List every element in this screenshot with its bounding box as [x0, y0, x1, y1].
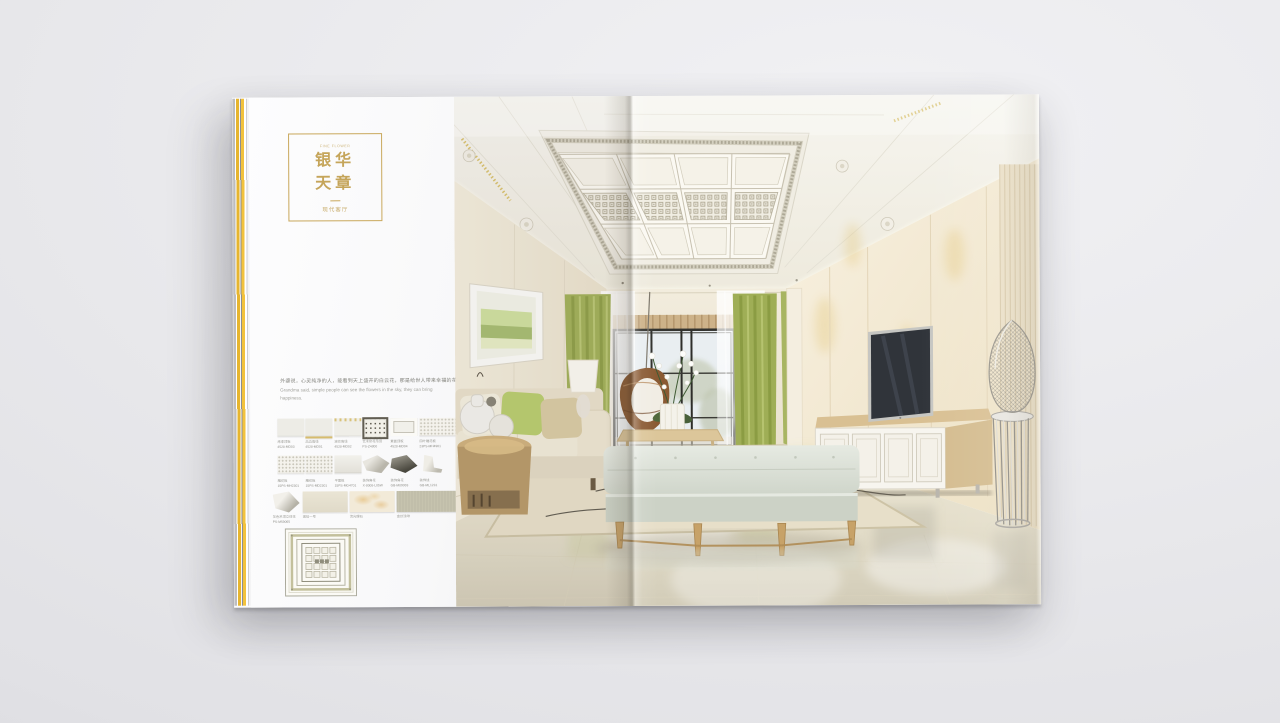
swatch-tile-ornate	[362, 417, 388, 439]
swatch-caption: 四叶雕花板23PS-MH4901	[419, 439, 459, 449]
swatch-caption: 装饰线GB-ML1231	[420, 478, 460, 488]
swatch-tile	[334, 455, 361, 473]
page-subtitle: 现代客厅	[289, 205, 381, 213]
fold-shading	[454, 96, 631, 607]
swatch-tile-beige	[303, 491, 348, 512]
swatch-caption: 流光理石	[350, 514, 390, 519]
top-light	[454, 94, 1039, 137]
tv	[868, 326, 933, 422]
swatch-tile-3d	[419, 455, 443, 473]
swatch-tile	[305, 418, 332, 438]
swatch-caption: 琥珀一号	[303, 514, 343, 519]
swatch-tile-3d	[362, 455, 389, 473]
swatch-green-stone	[397, 491, 463, 512]
intro-paragraph: 外婆说，心灵纯净的人，能看到天上盛开的白云花，那是给世人带来幸福的花。 Gran…	[280, 377, 462, 402]
title-block: FINE FLOWER 银华 天章 — 现代客厅	[288, 133, 382, 221]
title-divider: —	[330, 200, 340, 201]
page-title-line1: 银华	[289, 151, 381, 171]
interior-photo	[454, 94, 1041, 607]
page-edge-stack	[232, 99, 251, 606]
swatch-tile	[390, 418, 417, 436]
swatch-tile-lattice	[277, 455, 304, 473]
swatch-marble	[350, 491, 395, 512]
title-eyebrow: FINE FLOWER	[294, 143, 377, 148]
intro-zh: 外婆说，心灵纯净的人，能看到天上盛开的白云花，那是给世人带来幸福的花。	[280, 377, 462, 385]
swatch-tile	[277, 418, 304, 436]
intro-en-line2: happiness.	[280, 395, 302, 400]
swatch-tile-lattice	[305, 455, 332, 473]
catalog-spread: FINE FLOWER 银华 天章 — 现代客厅 外婆说，心灵纯净的人，能看到天…	[232, 94, 1041, 608]
ceiling-plan-diagram	[285, 528, 357, 601]
swatch-caption: 金丝浅啡	[397, 514, 437, 519]
intro-en-line1: Grandma said, simple people can see the …	[280, 387, 432, 393]
ottoman-bench	[595, 445, 860, 570]
swatch-tile-3d	[390, 455, 417, 473]
photo-backdrop: FINE FLOWER 银华 天章 — 现代客厅 外婆说，心灵纯净的人，能看到天…	[0, 0, 1280, 723]
page-title-line2: 天章	[289, 174, 381, 194]
swatch-tile	[334, 418, 361, 436]
swatch-3d-corner	[273, 491, 300, 512]
